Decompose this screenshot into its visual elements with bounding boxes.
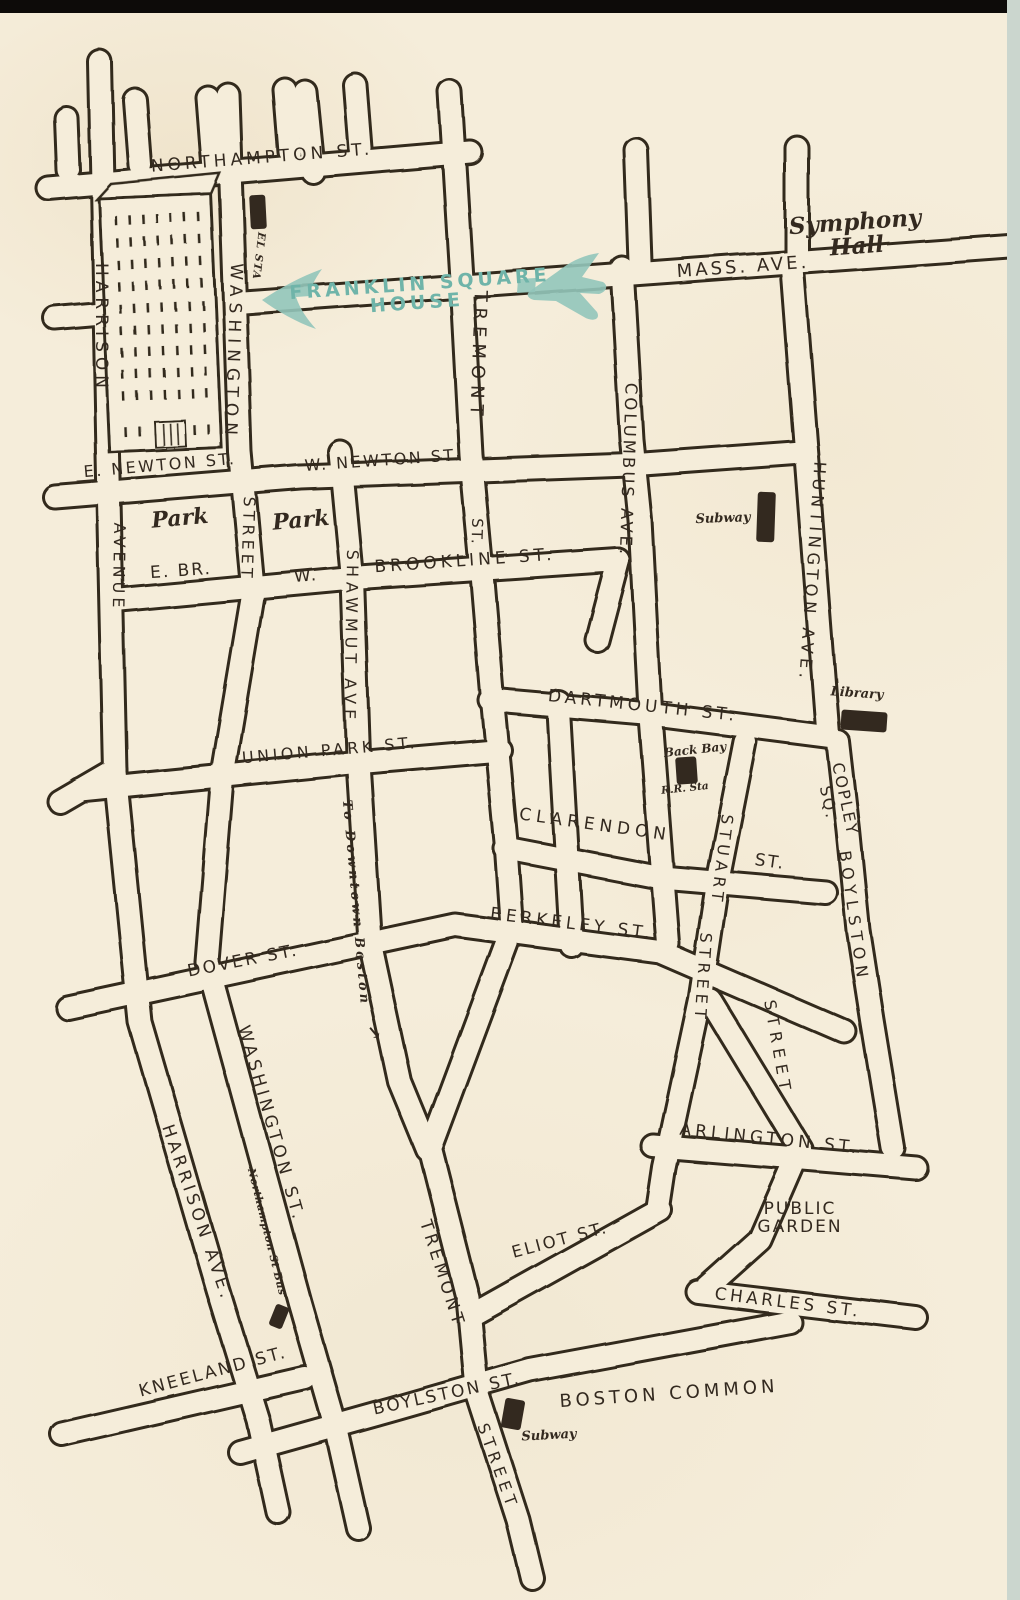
clarendon-st-label: ST. [754, 851, 787, 873]
scan-edge-right [1007, 0, 1020, 1600]
public-garden-label: PUBLIC GARDEN [757, 1200, 842, 1236]
avenue-label: AVENUE [109, 522, 127, 611]
w-label: W. [293, 566, 318, 586]
street-washington-label: STREET [237, 496, 257, 582]
tremont-st-label: ST. [468, 518, 485, 546]
park-west-label: Park [151, 505, 210, 533]
subway-station-columbus [756, 492, 776, 543]
subway-common-label: Subway [521, 1428, 577, 1445]
library-building [840, 709, 887, 732]
vintage-boston-map: NORTHAMPTON ST.MASS. AVE.HARRISONWASHING… [0, 0, 1020, 1600]
e-br-label: E. BR. [150, 560, 213, 582]
symphony-hall-label: Symphony Hall [788, 206, 924, 264]
park-east-label: Park [272, 507, 331, 535]
el-sta-station [249, 195, 267, 230]
tremont-label: TREMONT [466, 290, 490, 422]
shawmut-ave-label: SHAWMUT AVE. [340, 550, 360, 735]
harrison-label: HARRISON [92, 263, 110, 393]
franklin-square-house-building [96, 173, 232, 452]
scan-edge-top [0, 0, 1020, 13]
subway-columbus-label: Subway [695, 511, 751, 527]
back-bay-rr-station [675, 756, 698, 784]
